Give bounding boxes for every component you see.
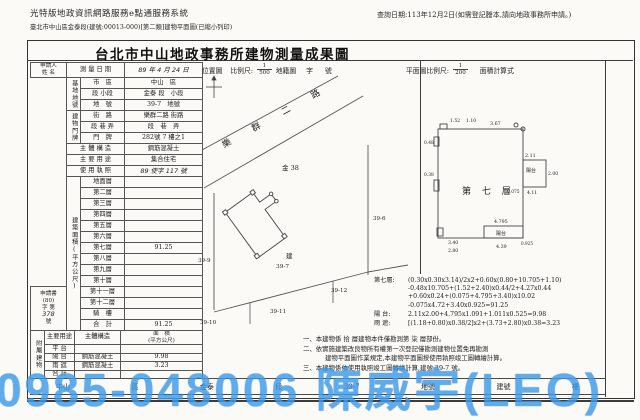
- door-value: 282號 7 樓之1: [125, 133, 203, 144]
- floor-value: [125, 177, 203, 188]
- total-value: 91.25: [125, 320, 203, 331]
- total-label: 合 計: [81, 320, 125, 331]
- applicant-cell: 申請人姓 名: [31, 63, 67, 78]
- query-date: 查詢日期:113年12月2日(如需登記謄本,請向地政事務所申請。): [377, 10, 571, 20]
- calc-balcony-label: 陽 台:: [374, 311, 408, 319]
- dim-label: 1.52: [450, 118, 460, 124]
- building-mark-label: 建: [286, 251, 293, 260]
- dim-label: 2.80: [448, 248, 458, 254]
- structure-label: 主 體 構 造: [67, 144, 125, 155]
- floor-value: [125, 287, 203, 298]
- building-lot-label: 39-7: [276, 264, 289, 270]
- parcel-line-bottom-ext: [368, 265, 408, 272]
- lot-39-6-label: 39-6: [373, 216, 386, 222]
- application-no-box: 申請書 (80) 字 第 378 號: [31, 287, 67, 331]
- plan-outline: [438, 129, 523, 238]
- dim-label: 2.00: [548, 171, 558, 177]
- structure-value: 鋼筋混凝土: [125, 144, 203, 155]
- door-label: 門 牌: [81, 133, 125, 144]
- floor-label: 第五層: [81, 221, 125, 232]
- floor-value: [125, 232, 203, 243]
- floor-label: 第十層: [81, 276, 125, 287]
- annex-area: [121, 345, 203, 354]
- note-2: 二、依實施建築改良物所有權第一次登記僅勘測建物位置免再勘測: [303, 345, 601, 355]
- site-lot-group-label: 基地地號: [67, 78, 81, 111]
- annex-structure-header: 主體構造: [75, 331, 121, 345]
- district-label: 市 區: [81, 78, 125, 89]
- dim-label: 0.48: [424, 141, 434, 146]
- floor-7-area: 91.25: [125, 243, 203, 254]
- lot-39-12-label: 39-12: [331, 288, 348, 294]
- floor-label: 第七層: [81, 243, 125, 254]
- floor-label: 第十一層: [81, 287, 125, 298]
- dim-label: 4.39: [496, 244, 507, 250]
- page-title: 台北市中山地政事務所建物測量成果圖: [95, 43, 350, 63]
- floor-value: [125, 265, 203, 276]
- district-value: 中山 區: [125, 78, 203, 89]
- floor-label: 第六層: [81, 232, 125, 243]
- area-calculation-block: 第七層: (0.30x0.30x3.14)/2x2+0.60x(0.80+10.…: [374, 277, 602, 329]
- street-value: 樂群二路 街路: [125, 111, 203, 122]
- north-arrow-icon: [206, 76, 222, 98]
- building-area-group-label: 建築面積(平方公尺): [67, 177, 81, 331]
- floor-value: [125, 199, 203, 210]
- left-margin-blank: [31, 78, 67, 287]
- calc-floor-label: 第七層:: [374, 277, 408, 310]
- lot-39-9-label: 39-9: [198, 258, 211, 264]
- usage-value: 集合住宅: [125, 155, 203, 166]
- dim-label: 0.38: [424, 173, 434, 178]
- balcony-label: 陽台: [526, 167, 536, 174]
- balcony-label: 陽台: [496, 230, 506, 237]
- floor-plan-header: 平面圖比例尺: 1200 面積計算式: [406, 63, 514, 77]
- section-label: 段 小段: [81, 89, 125, 100]
- note-1: 一、本建物係 拾 層建物本件僅勘測第 柒 層部份。: [303, 335, 601, 345]
- right-margin-divider: [605, 60, 606, 397]
- floor-label: 第二層: [81, 188, 125, 199]
- annex-use: 平 台: [45, 345, 75, 354]
- lot-38-label: 金 38: [282, 163, 299, 172]
- area-calc-label: 面積計算式: [480, 65, 514, 75]
- map-plan-divider: [420, 60, 421, 274]
- lot-label: 地 號: [81, 100, 125, 111]
- floor-value: [125, 298, 203, 309]
- document-subtitle: 臺北市中山區金泰段(建號:00013-000)[第二類]建物平面圖(已縮小列印): [30, 22, 232, 31]
- license-label: 使 用 執 照: [67, 166, 125, 177]
- floor-value: [125, 276, 203, 287]
- arcade-value: [125, 309, 203, 320]
- calc-floor-lines: (0.30x0.30x3.14)/2x2+0.60x(0.80+10.705+1…: [408, 277, 561, 310]
- lane-value: 段 巷 弄: [125, 122, 203, 133]
- floor-label: 第四層: [81, 210, 125, 221]
- floor-value: [125, 210, 203, 221]
- dim-label: 0.925: [521, 241, 533, 246]
- dim-label: 3.67: [490, 121, 501, 127]
- street-label: 街 路: [81, 111, 125, 122]
- dim-label: 1.10: [466, 118, 476, 124]
- survey-form-table: 申請人姓 名 測 量 日 期 89 年 4 月 24 日 基地地號 市 區 中山…: [30, 62, 203, 331]
- calc-canopy-formula: [(1.18+0.80)x0.38/2]x2+(3.73+2.80)x0.38=…: [408, 320, 560, 328]
- usage-label: 主 要 用 途: [67, 155, 125, 166]
- dim-label: 4.11: [527, 190, 537, 196]
- lot-value: 39-7 地號: [125, 100, 203, 111]
- arcade-label: 騎 樓: [81, 309, 125, 320]
- calc-balcony-formula: 2.11x2.00+4.795x1.091+1.011x0.525=9.98: [408, 311, 546, 319]
- lane-label: 段 巷 弄: [81, 122, 125, 133]
- survey-date-label: 測 量 日 期: [67, 63, 125, 78]
- dim-label: 3.40: [448, 240, 458, 246]
- plan-scale-fraction: 1200: [453, 63, 468, 77]
- license-value: 89 使字 117 號: [125, 166, 203, 177]
- annex-structure: [75, 345, 121, 354]
- floor-label: 第八層: [81, 254, 125, 265]
- annex-area-header: 面 積(平方公尺): [121, 331, 203, 345]
- floor-label: 第九層: [81, 265, 125, 276]
- section-value: 金泰 段 小段: [125, 89, 203, 100]
- address-group-label: 建物門牌: [67, 111, 81, 144]
- scanned-survey-document: { "header": { "system": "光特版地政資訊網路服務e點通服…: [0, 0, 640, 419]
- system-title: 光特版地政資訊網路服務e點通服務系統: [30, 7, 189, 19]
- lot-39-11-label: 39-11: [270, 309, 286, 315]
- floor-value: [125, 221, 203, 232]
- phone-watermark: 0985-048006 陳威宇(LEO): [0, 354, 603, 420]
- floor-label: 地面層: [81, 177, 125, 188]
- dim-label: 2.11: [525, 153, 536, 159]
- annex-use-header: 主要用途: [45, 331, 75, 345]
- floor-label: 第十二層: [81, 298, 125, 309]
- lot-39-10-label: 39-10: [200, 320, 217, 326]
- road-name-label: 樂 群 二 路: [220, 81, 332, 150]
- building-footprint: [222, 182, 298, 259]
- floor-value: [125, 188, 203, 199]
- floor-value: [125, 254, 203, 265]
- calc-canopy-label: 雨 遮:: [374, 320, 408, 328]
- floor-label: 第三層: [81, 199, 125, 210]
- survey-date-value: 89 年 4 月 24 日: [125, 63, 203, 78]
- dim-label: 0.075: [507, 190, 520, 195]
- floor-plan-drawing: 第 七 層 1.52 1.10 3.67 2.11 2.00 0.075 4.1…: [424, 82, 604, 278]
- plan-scale-label: 平面圖比例尺:: [406, 65, 449, 75]
- dim-label: 4.795: [494, 219, 508, 225]
